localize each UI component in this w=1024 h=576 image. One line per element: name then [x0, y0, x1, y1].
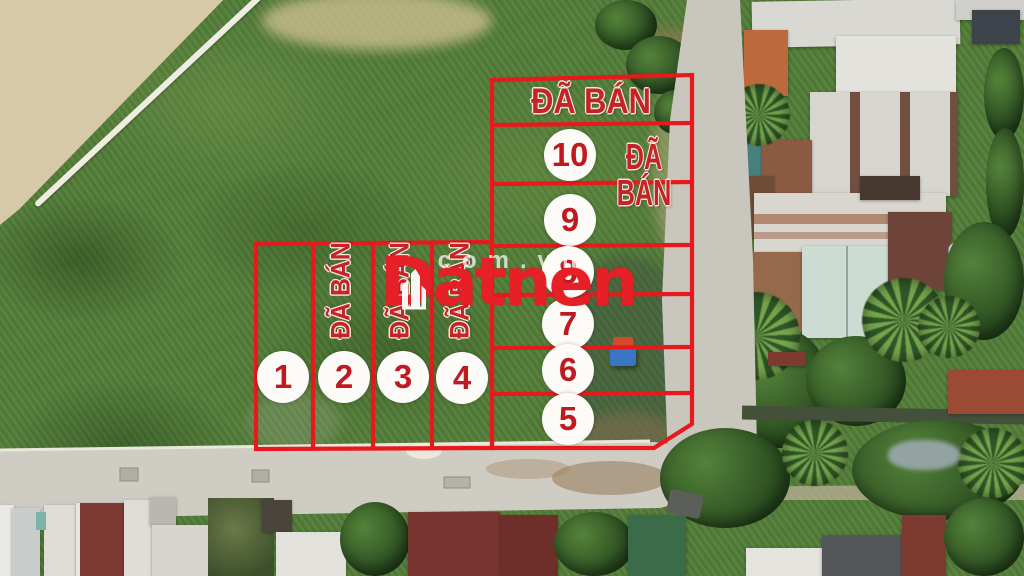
- plot-circle-4: 4: [436, 352, 488, 404]
- plot-circle-5: 5: [542, 393, 594, 445]
- sold-label-plot-10: ĐÃ BÁN: [602, 139, 686, 211]
- logo-d-icon: [399, 267, 429, 313]
- plot-number-4: 4: [453, 359, 471, 397]
- right-block-divider: [492, 393, 692, 394]
- plot-number-1: 1: [274, 358, 292, 396]
- plot-number-6: 6: [559, 351, 577, 389]
- plot-circle-6: 6: [542, 344, 594, 396]
- plot-number-2: 2: [335, 358, 353, 396]
- sold-banner-top: ĐÃ BÁN: [507, 84, 674, 119]
- plot-circle-2: 2: [318, 351, 370, 403]
- plot-number-3: 3: [394, 358, 412, 396]
- plot-number-9: 9: [561, 201, 579, 239]
- aerial-land-photo: ĐÃ BÁN ĐÃ BÁN ĐÃ BÁN ĐÃ BÁN ĐÃ BÁN 1 2 3…: [0, 0, 1024, 576]
- plot-circle-1: 1: [257, 351, 309, 403]
- right-block-divider: [492, 123, 692, 125]
- plot-circle-9: 9: [544, 194, 596, 246]
- plot-circle-10: 10: [544, 129, 596, 181]
- plot-number-10: 10: [552, 136, 589, 174]
- plot-number-5: 5: [559, 400, 577, 438]
- sold-label-plot-2: ĐÃ BÁN: [328, 235, 355, 345]
- right-block-divider: [492, 347, 692, 348]
- plot-circle-3: 3: [377, 351, 429, 403]
